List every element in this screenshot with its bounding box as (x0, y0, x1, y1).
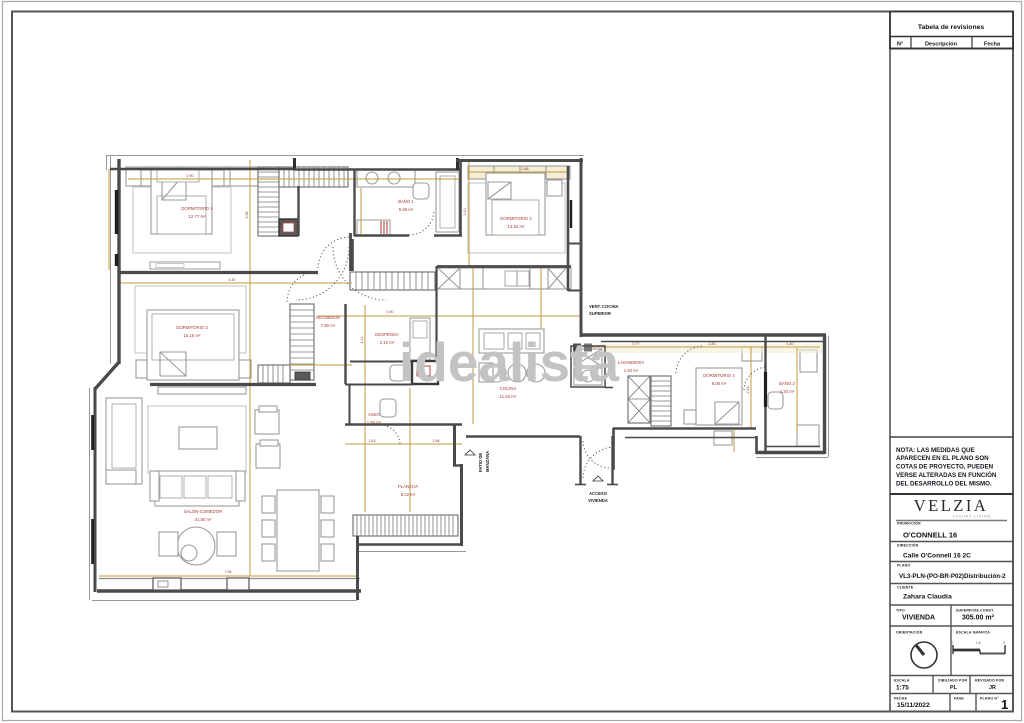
svg-text:9.06 m²: 9.06 m² (712, 381, 727, 386)
svg-text:1.63: 1.63 (369, 439, 376, 443)
svg-text:SALÓN-COMEDOR: SALÓN-COMEDOR (184, 509, 222, 514)
svg-text:idealista: idealista (399, 331, 620, 393)
svg-text:SUPERIOR: SUPERIOR (589, 311, 611, 316)
svg-text:Calle O'Connell 16 2C: Calle O'Connell 16 2C (903, 553, 971, 560)
svg-text:Tabela de revisiones: Tabela de revisiones (918, 24, 985, 31)
svg-text:ESCALA GRÁFICA: ESCALA GRÁFICA (956, 630, 990, 635)
svg-text:12.77 m²: 12.77 m² (189, 214, 207, 219)
svg-text:JR: JR (989, 685, 996, 691)
svg-text:1: 1 (1001, 697, 1008, 712)
svg-text:LUXURY LIVING: LUXURY LIVING (953, 515, 992, 519)
svg-text:PL: PL (950, 685, 958, 691)
svg-text:1.41: 1.41 (360, 337, 364, 344)
svg-text:1:75: 1:75 (896, 685, 909, 692)
svg-text:4.20 m²: 4.20 m² (780, 389, 795, 394)
svg-text:VL3-PLN-(PO-BR-P02)Distribució: VL3-PLN-(PO-BR-P02)Distribución-2 (899, 573, 1006, 580)
svg-text:7.56: 7.56 (225, 570, 232, 574)
svg-text:2.90: 2.90 (187, 174, 194, 178)
svg-text:11.62 m²: 11.62 m² (500, 394, 517, 399)
svg-text:0.90: 0.90 (387, 310, 394, 314)
svg-text:PLANO: PLANO (897, 564, 910, 568)
svg-text:5.06 m²: 5.06 m² (399, 207, 414, 212)
svg-text:Fecha: Fecha (984, 42, 1001, 48)
svg-text:13.52 m²: 13.52 m² (508, 224, 526, 229)
svg-text:CLIENTE: CLIENTE (897, 586, 914, 590)
svg-text:1.68: 1.68 (433, 439, 440, 443)
svg-text:ACCESO: ACCESO (589, 491, 608, 496)
svg-text:0.77: 0.77 (633, 342, 640, 346)
svg-text:PROMOCIÓN: PROMOCIÓN (897, 521, 921, 526)
svg-text:ASEO: ASEO (368, 412, 381, 417)
svg-text:COTAS DE PROYECTO, PUEDEN: COTAS DE PROYECTO, PUEDEN (896, 464, 994, 471)
svg-text:Zahara Claudia: Zahara Claudia (903, 594, 952, 601)
svg-text:1.80 m²: 1.80 m² (367, 420, 382, 425)
svg-text:VELZIA: VELZIA (914, 496, 989, 515)
svg-text:FASE: FASE (954, 697, 964, 701)
svg-text:2.88: 2.88 (522, 167, 529, 171)
svg-text:N°: N° (897, 42, 903, 48)
svg-text:305.00 m²: 305.00 m² (962, 615, 995, 622)
svg-text:VIVIENDA: VIVIENDA (588, 498, 608, 503)
svg-text:BAÑO 2: BAÑO 2 (779, 381, 795, 386)
svg-text:DORMITORIO 4: DORMITORIO 4 (703, 373, 735, 378)
svg-text:15.15 m²: 15.15 m² (184, 333, 202, 338)
svg-text:2.45: 2.45 (746, 387, 750, 394)
svg-text:7.80 m²: 7.80 m² (321, 323, 336, 328)
svg-text:4.40: 4.40 (229, 278, 236, 282)
svg-text:DORMITORIO 1: DORMITORIO 1 (181, 206, 213, 211)
svg-text:VERSE ALTERADAS EN FUNCIÓN: VERSE ALTERADAS EN FUNCIÓN (896, 471, 997, 479)
svg-text:VIVIENDA: VIVIENDA (902, 615, 935, 622)
svg-text:2.80: 2.80 (709, 342, 716, 346)
svg-text:3.55: 3.55 (245, 212, 249, 219)
svg-text:0: 0 (951, 641, 953, 645)
svg-text:DORMITORIO 3: DORMITORIO 3 (176, 325, 208, 330)
svg-text:NOTA: LAS MEDIDAS QUE: NOTA: LAS MEDIDAS QUE (896, 447, 975, 454)
svg-text:3.13: 3.13 (463, 209, 467, 216)
svg-text:DESPENSA: DESPENSA (375, 332, 399, 337)
svg-text:BAÑO 1: BAÑO 1 (398, 199, 414, 204)
svg-text:PLANO N°: PLANO N° (980, 697, 999, 701)
svg-text:MANZANA: MANZANA (485, 451, 490, 472)
svg-text:DEL DESARROLLO DEL MISMO.: DEL DESARROLLO DEL MISMO. (896, 481, 992, 488)
svg-text:6.22 m²: 6.22 m² (401, 492, 416, 497)
svg-text:1.34 m²: 1.34 m² (624, 368, 639, 373)
svg-text:O'CONNELL 16: O'CONNELL 16 (903, 531, 957, 540)
svg-text:SUPERFICIE CONST.: SUPERFICIE CONST. (956, 609, 994, 613)
svg-text:DIBUJADO POR: DIBUJADO POR (938, 679, 968, 683)
svg-text:1.5: 1.5 (976, 641, 981, 645)
svg-text:DORMITORIO 2: DORMITORIO 2 (500, 216, 532, 221)
svg-text:FECHA: FECHA (894, 697, 907, 701)
svg-text:1.40: 1.40 (787, 342, 794, 346)
svg-text:PATIO DE: PATIO DE (478, 453, 483, 472)
svg-text:DIRECCIÓN: DIRECCIÓN (897, 543, 919, 548)
svg-text:REVISADO POR: REVISADO POR (975, 679, 1005, 683)
svg-text:TIPO: TIPO (896, 609, 905, 613)
svg-text:Descripción: Descripción (925, 42, 958, 48)
svg-text:APARECEN EN EL PLANO SON: APARECEN EN EL PLANO SON (896, 455, 989, 462)
svg-text:RECIBIDOR: RECIBIDOR (316, 315, 340, 320)
svg-text:VENT. COCINA: VENT. COCINA (589, 304, 619, 309)
svg-text:ESCALA: ESCALA (894, 679, 910, 683)
svg-text:41.80 m²: 41.80 m² (195, 517, 213, 522)
svg-text:ORIENTACIÓN: ORIENTACIÓN (896, 630, 923, 635)
svg-text:15/11/2022: 15/11/2022 (897, 702, 930, 709)
svg-text:PLANCHA: PLANCHA (398, 484, 418, 489)
svg-text:3: 3 (1003, 641, 1005, 645)
svg-text:LAVANDERÍA: LAVANDERÍA (618, 360, 645, 365)
svg-text:2.10 m²: 2.10 m² (380, 340, 395, 345)
